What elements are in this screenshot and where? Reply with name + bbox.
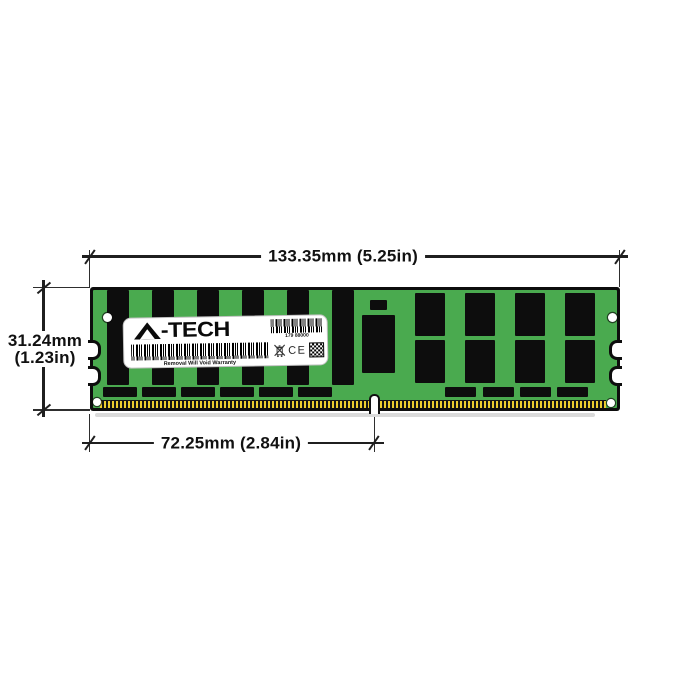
memory-chip (483, 387, 514, 397)
memory-chip (520, 387, 551, 397)
gold-pin-row (100, 400, 606, 408)
memory-chip (259, 387, 293, 397)
pinspan-dimension-label: 72.25mm (2.84in) (154, 434, 308, 453)
width-dimension-label: 133.35mm (5.25in) (261, 247, 425, 266)
memory-chip (415, 340, 445, 383)
weee-crossed-bin-icon (273, 343, 286, 358)
register-chip (362, 315, 395, 373)
memory-chip (142, 387, 176, 397)
memory-chip (565, 293, 595, 336)
edge-notch (609, 366, 622, 386)
mounting-hole (93, 398, 101, 406)
key-notch (369, 394, 380, 414)
module-shadow (95, 413, 595, 417)
warranty-text: Removal Will Void Warranty (131, 359, 268, 367)
edge-notch (609, 340, 622, 360)
serial-number: 179 88000 (271, 332, 323, 339)
memory-chip (557, 387, 588, 397)
height-label-in: (1.23in) (8, 349, 82, 366)
memory-chip (181, 387, 215, 397)
register-chip-small (370, 300, 387, 310)
mounting-hole (608, 313, 617, 322)
memory-chip (565, 340, 595, 383)
ce-mark: CE (288, 345, 306, 357)
memory-chip (415, 293, 445, 336)
product-label: -TECH 179 88000 Removal Will Void Warran… (123, 314, 329, 369)
mounting-hole (103, 313, 112, 322)
mounting-hole (607, 399, 615, 407)
height-dimension-label: 31.24mm (1.23in) (1, 331, 89, 367)
brand-wordmark: -TECH (161, 318, 230, 343)
dimension-diagram: 133.35mm (5.25in) 31.24mm (1.23in) 72.25… (0, 0, 700, 700)
a-tech-triangle-logo-icon (134, 322, 161, 339)
edge-notch (88, 340, 101, 360)
serial-barcode (271, 318, 323, 333)
pinspan-extension-line-center (374, 412, 376, 452)
edge-notch (88, 366, 101, 386)
memory-chip (332, 290, 354, 385)
memory-chip (465, 293, 495, 336)
qr-code-icon (309, 342, 324, 357)
memory-chip (298, 387, 332, 397)
memory-chip (445, 387, 476, 397)
memory-chip (465, 340, 495, 383)
memory-chip (515, 293, 545, 336)
ram-module: -TECH 179 88000 Removal Will Void Warran… (90, 287, 620, 411)
height-label-mm: 31.24mm (8, 332, 82, 349)
memory-chip (515, 340, 545, 383)
memory-chip (103, 387, 137, 397)
main-barcode (131, 342, 268, 360)
memory-chip (220, 387, 254, 397)
